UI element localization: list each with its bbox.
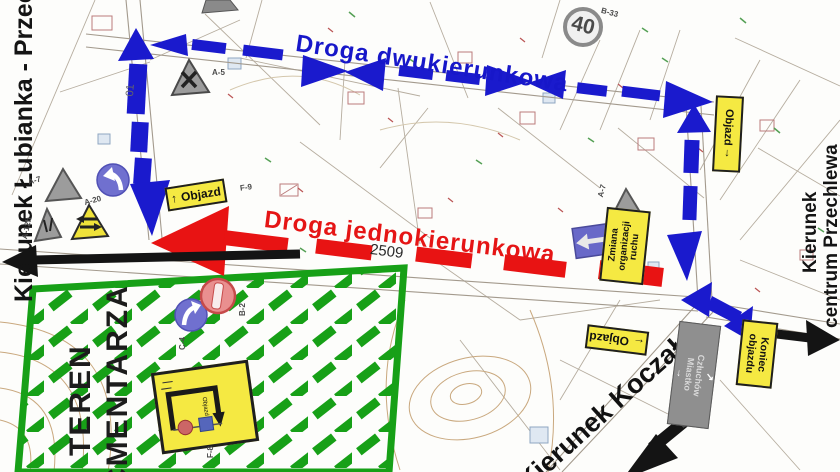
direction-label-left: Kierunek Łubianka - Przech (10, 0, 39, 302)
sign-code-b2: B-2 (238, 303, 247, 316)
detour-end-sign: Koniec objazdu (736, 319, 779, 388)
down-arrow-icon: ↓ (724, 147, 730, 159)
detour-scheme-sign-f8: Objazd (151, 360, 259, 455)
cemetery-label-line2: CMENTARZA (99, 284, 136, 472)
left-arrow-icon: ← (632, 335, 646, 350)
cemetery-label-line1: TEREN (62, 284, 99, 472)
lane-arrow-icon: → (674, 368, 685, 379)
diagonal-arrow-icon: ↗ (703, 372, 714, 382)
detour-sign-vertical: Objazd ↓ (712, 95, 744, 172)
detour-sign-reversed-label: Objazd (588, 330, 629, 349)
traffic-change-line3: ruchu (629, 233, 642, 260)
sign-code-f8: F-8 (206, 446, 215, 458)
direction-right-line2: centrum Przechlewa (821, 144, 840, 328)
detour-sign-vertical-label: Objazd (721, 108, 735, 145)
up-arrow-icon: ↑ (170, 191, 178, 206)
yield-sign-a7-left (46, 169, 81, 201)
two-way-traffic-sign-a20 (72, 205, 108, 239)
detour-sign-up-label: Objazd (180, 184, 222, 204)
cemetery-area-label: TEREN CMENTARZA (62, 284, 136, 472)
sign-code-c4: C-4 (178, 337, 187, 350)
partial-sign-top (202, 0, 238, 13)
turn-order-sign-left (97, 164, 129, 196)
sign-code-f9: F-9 (239, 182, 252, 193)
direction-label-right: Kierunek centrum Przechlewa (800, 144, 840, 328)
direction-right-line1: Kierunek (800, 144, 821, 328)
sign-code-a5: A-5 (212, 68, 225, 77)
road-left-label: 01 (124, 84, 137, 97)
traffic-plan-map: Droga dwukierunkowa Droga jednokierunkow… (0, 0, 840, 472)
detour-scheme-graphic (154, 366, 233, 447)
traffic-change-sign: Zmiana organizacji ruchu (599, 207, 650, 285)
